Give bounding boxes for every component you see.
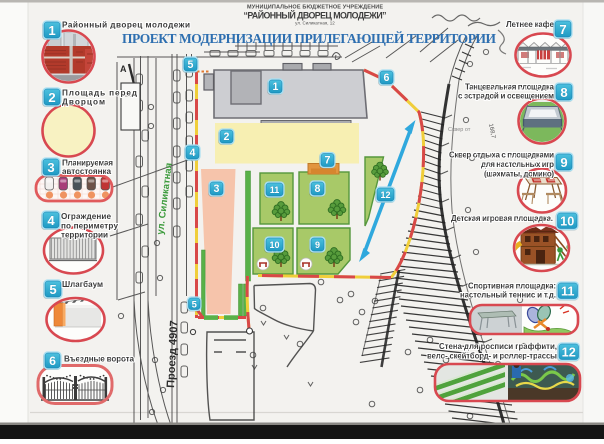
- svg-text:12: 12: [562, 345, 576, 360]
- svg-text:ПРОЕКТ МОДЕРНИЗАЦИИ ПРИЛЕГАЮ: ПРОЕКТ МОДЕРНИЗАЦИИ ПРИЛЕГАЮЩЕЙ ТЕРРИТОР…: [122, 31, 496, 46]
- svg-text:Въездные ворота: Въездные ворота: [64, 355, 134, 364]
- svg-text:11: 11: [270, 185, 280, 195]
- svg-text:(шахматы, домино): (шахматы, домино): [484, 170, 554, 179]
- svg-text:Районный дворец молодежи: Районный дворец молодежи: [62, 21, 190, 30]
- svg-text:Сквер от: Сквер от: [448, 127, 471, 133]
- svg-text:9: 9: [315, 240, 320, 250]
- svg-text:5: 5: [188, 59, 194, 71]
- svg-text:с эстрадой и освещением: с эстрадой и освещением: [458, 92, 554, 101]
- svg-text:1: 1: [48, 23, 55, 38]
- svg-text:Спортивная площадка:: Спортивная площадка:: [468, 282, 556, 291]
- svg-text:1: 1: [273, 81, 279, 93]
- svg-text:Дворцом: Дворцом: [62, 98, 105, 107]
- svg-text:7: 7: [559, 22, 566, 37]
- svg-text:2: 2: [224, 131, 230, 143]
- svg-text:8: 8: [315, 183, 321, 195]
- svg-text:настольный теннис и т.д.: настольный теннис и т.д.: [460, 291, 556, 300]
- svg-text:Площадь перед: Площадь перед: [62, 89, 138, 98]
- svg-text:автостоянка: автостоянка: [62, 167, 111, 176]
- svg-text:3: 3: [214, 183, 220, 195]
- svg-text:Летнее кафе: Летнее кафе: [506, 20, 554, 29]
- svg-text:9: 9: [560, 155, 567, 170]
- svg-text:для настольных игр: для настольных игр: [481, 160, 554, 169]
- svg-text:6: 6: [49, 354, 56, 368]
- svg-text:“РАЙОННЫЙ ДВОРЕЦ МОЛОДЕЖИ”: “РАЙОННЫЙ ДВОРЕЦ МОЛОДЕЖИ”: [244, 10, 387, 21]
- svg-text:ул. Силикатная, 12: ул. Силикатная, 12: [295, 21, 335, 26]
- svg-text:7: 7: [325, 154, 331, 166]
- svg-text:12: 12: [380, 190, 390, 200]
- svg-text:5: 5: [49, 282, 56, 297]
- svg-text:2: 2: [48, 90, 55, 105]
- svg-text:Танцевальная площадка: Танцевальная площадка: [465, 83, 555, 92]
- svg-text:по периметру: по периметру: [61, 221, 118, 230]
- svg-text:Ограждение: Ограждение: [61, 212, 111, 221]
- svg-text:А: А: [120, 64, 127, 74]
- svg-text:11: 11: [561, 284, 574, 299]
- svg-text:10: 10: [560, 214, 574, 229]
- svg-text:3: 3: [47, 160, 54, 175]
- svg-text:Сквер отдыха с площадками: Сквер отдыха с площадками: [449, 151, 554, 160]
- svg-text:6: 6: [384, 72, 390, 84]
- svg-text:8: 8: [560, 85, 567, 100]
- svg-text:вело- скейтборд- и роллер-трас: вело- скейтборд- и роллер-трассы: [427, 352, 557, 361]
- svg-text:10: 10: [269, 240, 279, 250]
- svg-text:Стена для росписи граффити,: Стена для росписи граффити,: [439, 342, 557, 351]
- svg-text:4: 4: [47, 213, 55, 228]
- svg-text:территории: территории: [61, 231, 108, 240]
- svg-text:Детская игровая площадка.: Детская игровая площадка.: [451, 214, 553, 223]
- svg-text:5: 5: [192, 299, 197, 310]
- svg-text:Шлагбаум: Шлагбаум: [62, 279, 103, 289]
- svg-text:4: 4: [190, 147, 196, 159]
